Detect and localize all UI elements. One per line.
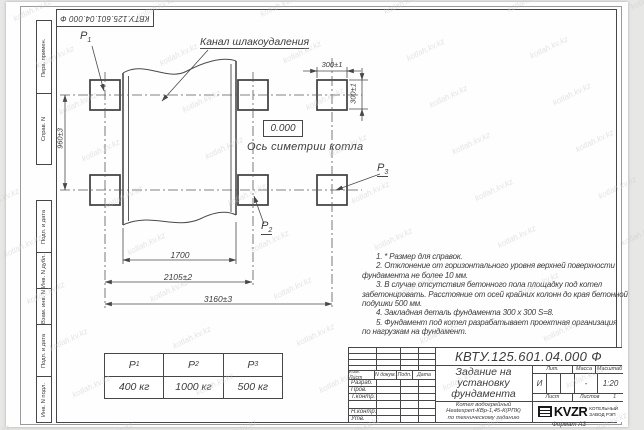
technical-notes: 1. * Размер для справок. 2. Отклонение о… xyxy=(362,252,624,337)
margin-label: Инв. N подл. xyxy=(41,382,47,416)
elevation-mark: 0.000 xyxy=(263,120,303,137)
drawing-sheet-screenshot: КВТУ.125.601.04.000 Ф Перв. примен. Спра… xyxy=(0,0,644,430)
col-podp: Подп. xyxy=(396,371,412,378)
margin-label: Справ. N xyxy=(41,117,47,141)
load-table: P1 P2 P3 400 кг 1000 кг 500 кг xyxy=(104,353,283,399)
lit-label: Лит. xyxy=(533,365,573,373)
note-line: подушки 500 мм. xyxy=(362,299,624,308)
marker-p3-label: P3 xyxy=(377,162,388,177)
signature-header-row: Изм. Лист N докум. Подп. Дата xyxy=(349,371,435,379)
note-line: по нагрузкам на фундамент. xyxy=(362,327,624,336)
note-line: 4. Закладная деталь фундамента 300 x 300… xyxy=(362,308,624,317)
masshtab-value: 1:20 xyxy=(598,373,623,393)
listov-label: Листов xyxy=(580,394,600,400)
margin-label: Перв. примен. xyxy=(41,38,47,77)
p-sub: 1 xyxy=(136,361,140,368)
lit-value: И xyxy=(533,373,547,393)
lit-massa-masshtab-values: И - 1:20 xyxy=(533,373,623,394)
p3-sub: 3 xyxy=(384,169,388,176)
row-tkontr: Т.контр. xyxy=(349,394,376,400)
margin-cell-perv-primen: Перв. примен. xyxy=(36,20,52,95)
title-block: Изм. Лист N докум. Подп. Дата Разраб. Пр… xyxy=(348,347,622,422)
col-n-dokum: N докум. xyxy=(374,371,396,378)
p-symbol: P xyxy=(129,359,136,371)
top-doc-number-text: КВТУ.125.601.04.000 Ф xyxy=(60,14,150,23)
kvzr-logo-icon xyxy=(538,406,552,417)
drawing-title: Задание на установку фундамента xyxy=(435,365,532,402)
note-line: 2. Отклонение от горизонтального уровня … xyxy=(362,261,624,270)
list-label: Лист xyxy=(533,393,573,401)
top-doc-number-stamp: КВТУ.125.601.04.000 Ф xyxy=(56,9,154,27)
load-value-p2: 1000 кг xyxy=(163,377,222,399)
dim-300-top-label: 300±1 xyxy=(307,60,357,69)
col-izm-list: Изм. Лист xyxy=(349,371,374,378)
dim-1700-label: 1700 xyxy=(150,250,210,260)
massa-label: Масса xyxy=(573,365,596,373)
load-value-p1: 400 кг xyxy=(105,377,163,399)
massa-value: - xyxy=(575,373,598,393)
margin-cell-inv-dubl: Инв. N дубл. xyxy=(36,252,52,290)
margin-cell-inv-podl: Инв. N подл. xyxy=(36,376,52,423)
note-line: 5. Фундамент под котел разрабатывает про… xyxy=(362,318,624,327)
note-line: 1. * Размер для справок. xyxy=(362,252,624,261)
p2-sub: 2 xyxy=(268,227,272,234)
load-table-header-row: P1 P2 P3 xyxy=(105,354,282,377)
row-nkontr: Н.контр. xyxy=(349,409,376,415)
org-line-2: ЗАВОД РЭП xyxy=(589,412,618,417)
row-razrab: Разраб. xyxy=(349,380,376,386)
masshtab-label: Масштаб xyxy=(596,365,623,373)
load-table-header-p1: P1 xyxy=(105,354,163,376)
margin-cell-vzam-inv: Взам. инв. N xyxy=(36,288,52,326)
subtitle-line-2: Heatexpert-КВр-1,45-К(РПК) xyxy=(446,408,521,415)
axis-symmetry-label: Ось симетрии котла xyxy=(247,141,363,153)
elevation-value: 0.000 xyxy=(270,123,295,134)
doc-number: КВТУ.125.601.04.000 Ф xyxy=(435,348,622,366)
row-utv: Утв. xyxy=(349,416,376,422)
load-table-value-row: 400 кг 1000 кг 500 кг xyxy=(105,377,282,399)
kvzr-logo-text: KVZR xyxy=(554,404,587,419)
margin-cell-podp-data-2: Подп. и дата xyxy=(36,324,52,378)
channel-label: Канал шлакоудаления xyxy=(200,36,309,49)
org-name: КОТЕЛЬНЫЙ ЗАВОД РЭП xyxy=(589,406,618,416)
marker-p2-label: P2 xyxy=(261,220,272,235)
format-label: Формат А3 xyxy=(552,421,586,428)
p1-sub: 1 xyxy=(87,37,91,44)
subtitle-line-1: Котел водогрейный xyxy=(456,402,511,409)
marker-p1-label: P1 xyxy=(80,30,91,44)
drawing-subtitle: Котел водогрейный Heatexpert-КВр-1,45-К(… xyxy=(435,401,532,422)
margin-label: Инв. N дубл. xyxy=(41,254,47,288)
p-symbol: P xyxy=(188,359,195,371)
listov-value: 1 xyxy=(613,394,616,400)
col-data: Дата xyxy=(412,371,435,378)
load-table-header-p3: P3 xyxy=(223,354,282,376)
p-sub: 3 xyxy=(254,361,258,368)
title-block-right-section: Лит. Масса Масштаб И - 1:20 Лист Листов … xyxy=(532,365,623,422)
dim-300-right-label: 300±1 xyxy=(349,74,358,114)
margin-label: Взам. инв. N xyxy=(41,290,47,324)
dim-3160-label: 3160±3 xyxy=(188,294,248,304)
margin-label: Подп. и дата xyxy=(41,210,47,244)
title-block-signature-table: Изм. Лист N докум. Подп. Дата Разраб. Пр… xyxy=(349,348,436,422)
p-symbol: P xyxy=(247,359,254,371)
organization-cell: KVZR КОТЕЛЬНЫЙ ЗАВОД РЭП xyxy=(533,401,623,422)
load-table-header-p2: P2 xyxy=(163,354,222,376)
note-line: фундамента не более 10 мм. xyxy=(362,271,624,280)
p-sub: 2 xyxy=(195,361,199,368)
subtitle-line-3: по техническому заданию xyxy=(448,415,520,422)
dim-2105-label: 2105±2 xyxy=(148,272,208,282)
note-line: 3. В случае отсутствия бетонного пола пл… xyxy=(362,280,624,289)
margin-label: Подп. и дата xyxy=(41,334,47,368)
margin-cell-sprav-n: Справ. N xyxy=(36,93,52,165)
row-prov: Пров. xyxy=(349,387,376,393)
margin-cell-podp-data-1: Подп. и дата xyxy=(36,200,52,254)
note-line: забетонировать. Расстояние от осей крайн… xyxy=(362,290,624,299)
dim-960-label: 960±3 xyxy=(56,117,65,161)
load-value-p3: 500 кг xyxy=(223,377,282,399)
